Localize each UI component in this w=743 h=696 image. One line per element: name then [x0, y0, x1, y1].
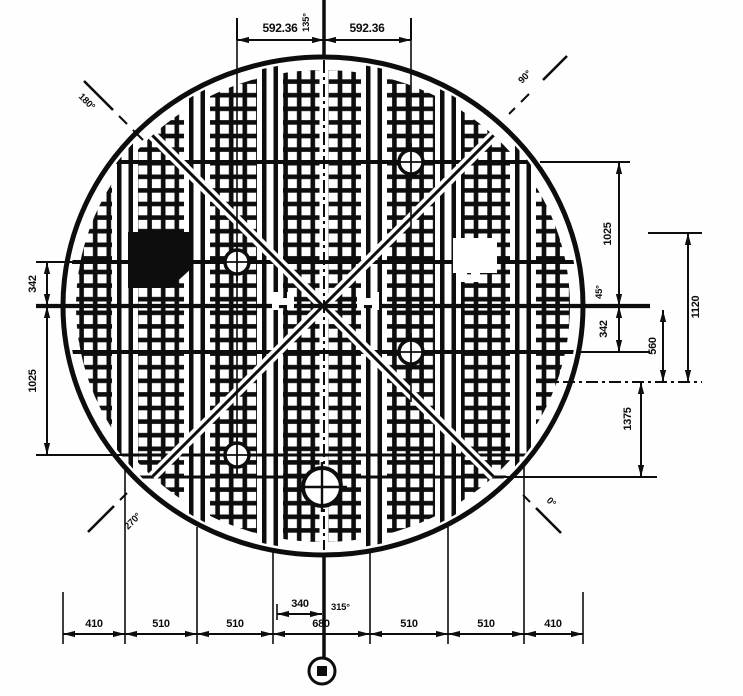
dim-bottom-5-label: 510: [400, 618, 418, 630]
angle-marker-southwest: [88, 493, 127, 532]
dim-left-1025-label: 1025: [27, 369, 39, 392]
dim-bottom-340-label: 340: [291, 598, 309, 610]
dim-top-right-label: 592.36: [350, 21, 386, 35]
angle-northeast-label: 90°: [516, 68, 534, 86]
angle-south-label: 315°: [331, 602, 350, 613]
dim-bottom-4-label: 680: [312, 618, 330, 630]
dim-bottom-2-label: 510: [152, 618, 170, 630]
dim-bottom-7-label: 410: [544, 618, 562, 630]
dim-bottom-3-label: 510: [226, 618, 244, 630]
dim-right-1025-label: 1025: [602, 222, 614, 245]
dim-right-1375-label: 1375: [622, 407, 634, 430]
dim-left-342-label: 342: [27, 275, 39, 293]
dim-right-1120-label: 1120: [690, 295, 702, 318]
datum-target-symbol: [309, 658, 335, 684]
angle-east-label: 45°: [594, 285, 605, 299]
dim-right-560-label: 560: [647, 337, 659, 355]
dim-top-left-label: 592.36: [263, 21, 299, 35]
angle-northwest-label: 180°: [76, 91, 97, 112]
angle-marker-northwest: [84, 81, 143, 140]
technical-drawing-canvas: 592.36 592.36 135° 342 1025 1025 342 112…: [0, 0, 743, 696]
dim-bottom-6-label: 510: [477, 618, 495, 630]
angle-marker-northeast: [509, 56, 567, 114]
dim-right-342-label: 342: [598, 320, 610, 338]
angle-southeast-label: 0°: [544, 495, 558, 509]
dim-bottom-1-label: 410: [85, 618, 103, 630]
drawing-sheet: 592.36 592.36 135° 342 1025 1025 342 112…: [0, 0, 743, 696]
angle-north-label: 135°: [301, 13, 312, 32]
